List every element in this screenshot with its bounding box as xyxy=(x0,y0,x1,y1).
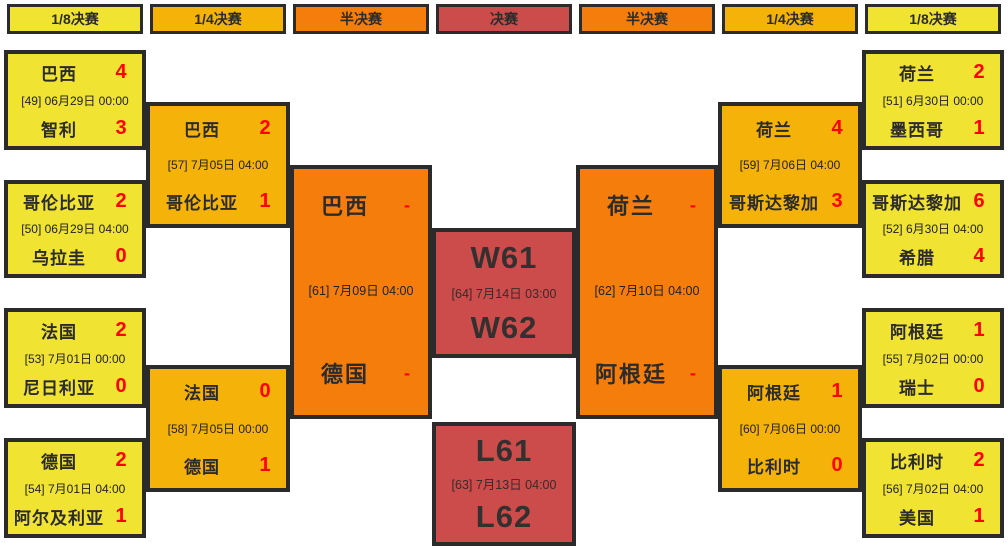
team-name: 阿根廷 xyxy=(871,318,963,343)
team-name: 乌拉圭 xyxy=(13,244,105,269)
team-score: 6 xyxy=(963,190,995,213)
team-name: 德国 xyxy=(155,453,249,478)
match-date: [58] 7月05日 00:00 xyxy=(155,420,281,437)
team-score: 3 xyxy=(105,117,137,140)
match-date: [51] 6月30日 00:00 xyxy=(871,92,995,109)
match-box-54: 德国 2 [54] 7月01日 04:00 阿尔及利亚 1 xyxy=(4,438,146,538)
team-name: 阿尔及利亚 xyxy=(13,504,105,529)
team-row: L61 xyxy=(441,433,567,469)
team-score: 0 xyxy=(105,375,137,398)
match-box-55: 阿根廷 1 [55] 7月02日 00:00 瑞士 0 xyxy=(862,308,1004,408)
team-row: 荷兰 - xyxy=(585,189,709,221)
team-row: L62 xyxy=(441,499,567,535)
tournament-bracket: 1/8决赛 1/4决赛 半决赛 决赛 半决赛 1/4决赛 1/8决赛 巴西 4 … xyxy=(0,0,1008,548)
team-row: 乌拉圭 0 xyxy=(13,244,137,269)
team-row: 比利时 2 xyxy=(871,448,995,473)
team-row: 墨西哥 1 xyxy=(871,116,995,141)
team-row: 智利 3 xyxy=(13,116,137,141)
team-row: 巴西 4 xyxy=(13,60,137,85)
team-row: W61 xyxy=(441,240,567,276)
team-name: 巴西 xyxy=(13,60,105,85)
team-score: 1 xyxy=(963,319,995,342)
team-row: 比利时 0 xyxy=(727,453,853,478)
match-date: [49] 06月29日 00:00 xyxy=(13,92,137,109)
team-score: 2 xyxy=(963,61,995,84)
team-name: 阿根廷 xyxy=(585,357,677,389)
team-score: 1 xyxy=(963,117,995,140)
header-final: 决赛 xyxy=(436,4,572,34)
team-score: 1 xyxy=(105,505,137,528)
match-date: [50] 06月29日 04:00 xyxy=(13,220,137,237)
team-name: 法国 xyxy=(155,379,249,404)
team-name: 美国 xyxy=(871,504,963,529)
team-name: 尼日利亚 xyxy=(13,374,105,399)
team-name: L61 xyxy=(441,433,567,469)
match-box-63-third-place: L61 [63] 7月13日 04:00 L62 xyxy=(432,422,576,546)
team-name: 瑞士 xyxy=(871,374,963,399)
team-row: 阿根廷 1 xyxy=(871,318,995,343)
match-date: [57] 7月05日 04:00 xyxy=(155,156,281,173)
team-score: - xyxy=(677,195,709,216)
team-name: 哥伦比亚 xyxy=(155,189,249,214)
team-name: 智利 xyxy=(13,116,105,141)
team-row: 巴西 - xyxy=(299,189,423,221)
team-score: 2 xyxy=(105,449,137,472)
team-name: 希腊 xyxy=(871,244,963,269)
team-row: 德国 2 xyxy=(13,448,137,473)
team-score: 4 xyxy=(963,245,995,268)
team-row: 哥伦比亚 1 xyxy=(155,189,281,214)
team-row: 尼日利亚 0 xyxy=(13,374,137,399)
team-name: 哥斯达黎加 xyxy=(871,189,963,214)
team-score: 0 xyxy=(249,380,281,403)
match-date: [59] 7月06日 04:00 xyxy=(727,156,853,173)
team-name: 法国 xyxy=(13,318,105,343)
team-score: 0 xyxy=(821,454,853,477)
team-row: 阿根廷 - xyxy=(585,357,709,389)
team-score: 1 xyxy=(249,454,281,477)
team-name: 巴西 xyxy=(155,116,249,141)
match-date: [60] 7月06日 00:00 xyxy=(727,420,853,437)
match-box-49: 巴西 4 [49] 06月29日 00:00 智利 3 xyxy=(4,50,146,150)
team-row: 瑞士 0 xyxy=(871,374,995,399)
team-name: 荷兰 xyxy=(727,116,821,141)
team-score: 1 xyxy=(821,380,853,403)
header-round-of-16-left: 1/8决赛 xyxy=(7,4,143,34)
team-score: 2 xyxy=(105,319,137,342)
team-row: 希腊 4 xyxy=(871,244,995,269)
match-box-53: 法国 2 [53] 7月01日 00:00 尼日利亚 0 xyxy=(4,308,146,408)
team-row: 阿尔及利亚 1 xyxy=(13,504,137,529)
team-row: 荷兰 4 xyxy=(727,116,853,141)
team-score: - xyxy=(677,363,709,384)
match-date: [55] 7月02日 00:00 xyxy=(871,350,995,367)
match-date: [52] 6月30日 04:00 xyxy=(871,220,995,237)
team-score: 2 xyxy=(249,117,281,140)
header-quarterfinal-right: 1/4决赛 xyxy=(722,4,858,34)
match-box-52: 哥斯达黎加 6 [52] 6月30日 04:00 希腊 4 xyxy=(862,180,1004,278)
team-score: 3 xyxy=(821,190,853,213)
team-row: 德国 1 xyxy=(155,453,281,478)
team-row: 法国 2 xyxy=(13,318,137,343)
match-date: [62] 7月10日 04:00 xyxy=(585,280,709,299)
match-box-61: 巴西 - [61] 7月09日 04:00 德国 - xyxy=(290,165,432,419)
team-score: - xyxy=(391,195,423,216)
team-row: 哥斯达黎加 6 xyxy=(871,189,995,214)
team-row: 法国 0 xyxy=(155,379,281,404)
match-date: [54] 7月01日 04:00 xyxy=(13,480,137,497)
team-row: 美国 1 xyxy=(871,504,995,529)
team-name: 荷兰 xyxy=(871,60,963,85)
team-score: 1 xyxy=(963,505,995,528)
team-score: 1 xyxy=(249,190,281,213)
team-name: 德国 xyxy=(13,448,105,473)
team-row: 哥伦比亚 2 xyxy=(13,189,137,214)
team-score: - xyxy=(391,363,423,384)
match-box-62: 荷兰 - [62] 7月10日 04:00 阿根廷 - xyxy=(576,165,718,419)
team-row: 荷兰 2 xyxy=(871,60,995,85)
header-semifinal-left: 半决赛 xyxy=(293,4,429,34)
team-score: 2 xyxy=(963,449,995,472)
team-name: W61 xyxy=(441,240,567,276)
team-name: 德国 xyxy=(299,357,391,389)
team-score: 2 xyxy=(105,190,137,213)
team-name: 阿根廷 xyxy=(727,379,821,404)
team-name: W62 xyxy=(441,310,567,346)
team-score: 0 xyxy=(105,245,137,268)
team-row: 巴西 2 xyxy=(155,116,281,141)
match-date: [53] 7月01日 00:00 xyxy=(13,350,137,367)
header-semifinal-right: 半决赛 xyxy=(579,4,715,34)
team-score: 4 xyxy=(821,117,853,140)
team-name: 巴西 xyxy=(299,189,391,221)
team-name: 比利时 xyxy=(871,448,963,473)
team-score: 0 xyxy=(963,375,995,398)
team-row: 阿根廷 1 xyxy=(727,379,853,404)
team-name: 比利时 xyxy=(727,453,821,478)
match-date: [56] 7月02日 04:00 xyxy=(871,480,995,497)
match-box-58: 法国 0 [58] 7月05日 00:00 德国 1 xyxy=(146,365,290,492)
team-name: L62 xyxy=(441,499,567,535)
header-quarterfinal-left: 1/4决赛 xyxy=(150,4,286,34)
match-date: [61] 7月09日 04:00 xyxy=(299,280,423,299)
match-box-59: 荷兰 4 [59] 7月06日 04:00 哥斯达黎加 3 xyxy=(718,102,862,228)
match-box-64-final: W61 [64] 7月14日 03:00 W62 xyxy=(432,228,576,358)
team-row: W62 xyxy=(441,310,567,346)
header-round-of-16-right: 1/8决赛 xyxy=(865,4,1001,34)
team-name: 哥伦比亚 xyxy=(13,189,105,214)
match-box-57: 巴西 2 [57] 7月05日 04:00 哥伦比亚 1 xyxy=(146,102,290,228)
team-name: 墨西哥 xyxy=(871,116,963,141)
team-row: 德国 - xyxy=(299,357,423,389)
team-score: 4 xyxy=(105,61,137,84)
match-box-60: 阿根廷 1 [60] 7月06日 00:00 比利时 0 xyxy=(718,365,862,492)
match-date: [64] 7月14日 03:00 xyxy=(441,283,567,302)
team-name: 哥斯达黎加 xyxy=(727,189,821,214)
team-row: 哥斯达黎加 3 xyxy=(727,189,853,214)
match-box-51: 荷兰 2 [51] 6月30日 00:00 墨西哥 1 xyxy=(862,50,1004,150)
match-date: [63] 7月13日 04:00 xyxy=(441,474,567,493)
team-name: 荷兰 xyxy=(585,189,677,221)
match-box-50: 哥伦比亚 2 [50] 06月29日 04:00 乌拉圭 0 xyxy=(4,180,146,278)
match-box-56: 比利时 2 [56] 7月02日 04:00 美国 1 xyxy=(862,438,1004,538)
